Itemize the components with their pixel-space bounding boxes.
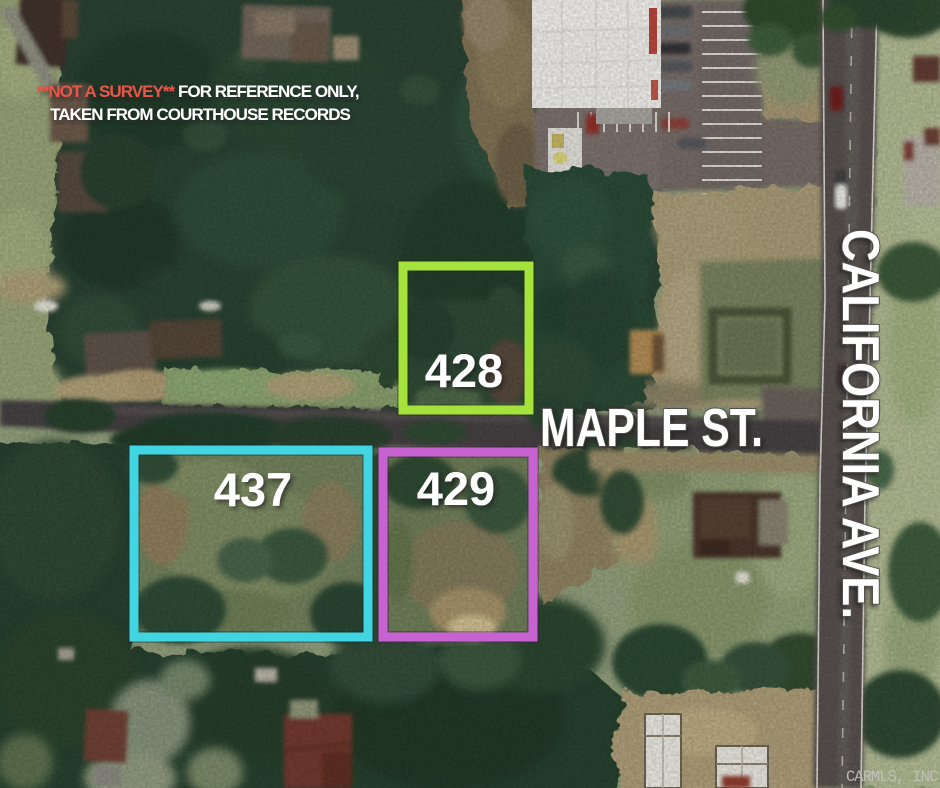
svg-text:TAKEN FROM COURTHOUSE RECORDS: TAKEN FROM COURTHOUSE RECORDS (50, 105, 350, 124)
svg-text:CARMLS, INC: CARMLS, INC (846, 768, 938, 786)
svg-text:MAPLE ST.: MAPLE ST. (540, 398, 763, 458)
svg-text:429: 429 (417, 462, 495, 515)
svg-text:**NOT A SURVEY** FOR REFERENCE: **NOT A SURVEY** FOR REFERENCE ONLY, (37, 82, 359, 101)
svg-text:437: 437 (214, 463, 292, 516)
svg-text:428: 428 (425, 344, 503, 397)
svg-text:CALIFORNIA AVE.: CALIFORNIA AVE. (831, 229, 889, 619)
